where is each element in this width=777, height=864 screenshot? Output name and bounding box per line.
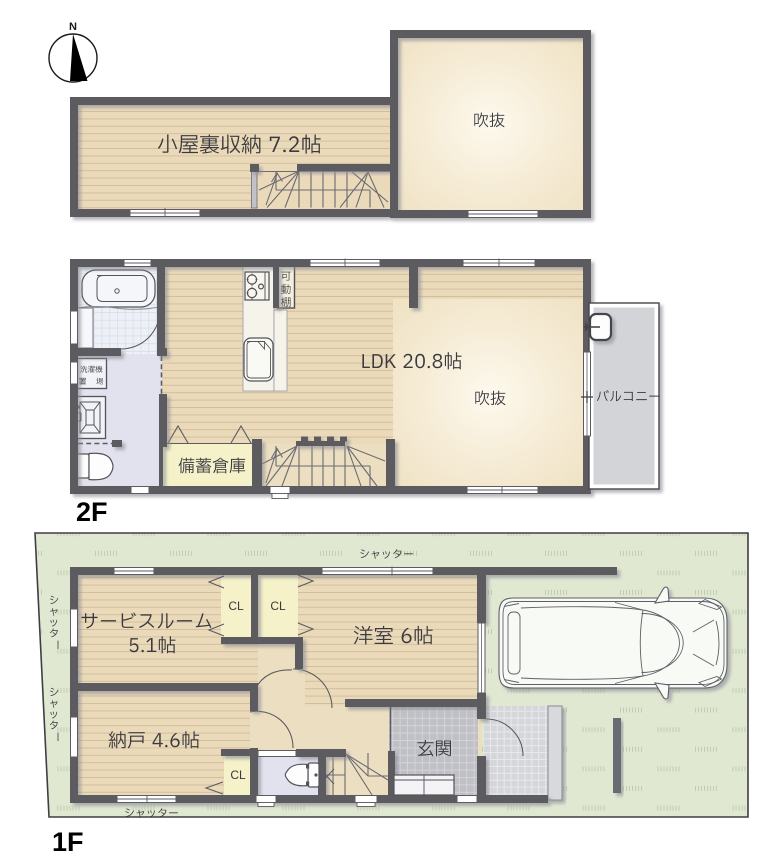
- svg-text:CL: CL: [230, 768, 246, 782]
- svg-text:N: N: [69, 21, 77, 33]
- svg-text:CL: CL: [270, 599, 286, 613]
- svg-text:2F: 2F: [76, 497, 108, 527]
- svg-text:CL: CL: [228, 599, 244, 613]
- svg-text:1F: 1F: [52, 827, 84, 857]
